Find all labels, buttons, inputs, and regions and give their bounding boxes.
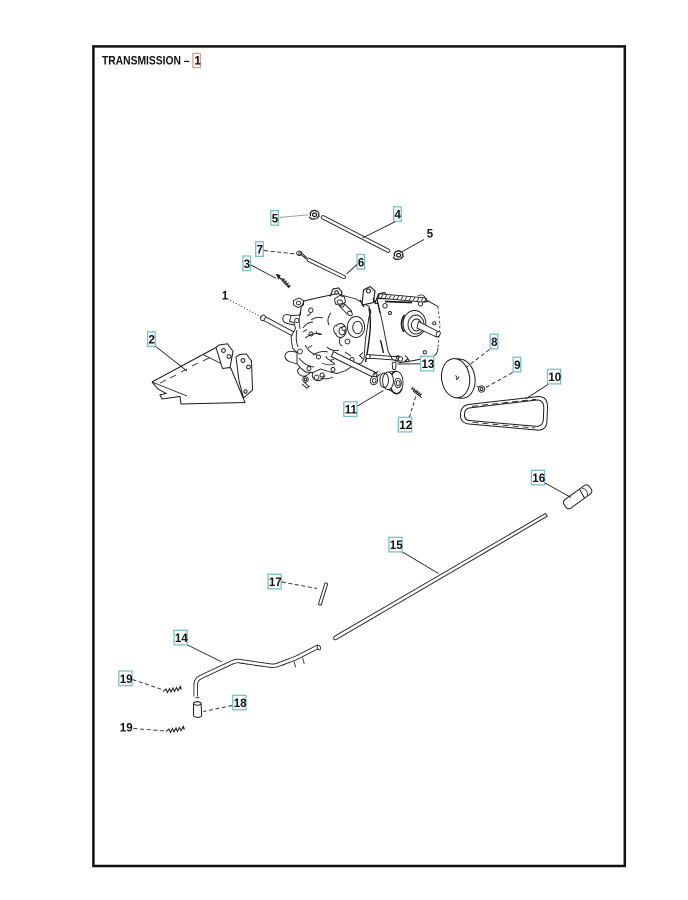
svg-text:4: 4 bbox=[395, 210, 402, 222]
svg-text:16: 16 bbox=[532, 473, 545, 485]
svg-text:19: 19 bbox=[120, 723, 133, 735]
svg-text:1: 1 bbox=[222, 291, 229, 303]
svg-text:5: 5 bbox=[272, 213, 279, 225]
svg-text:11: 11 bbox=[345, 405, 358, 417]
svg-text:10: 10 bbox=[548, 372, 561, 384]
svg-text:9: 9 bbox=[514, 360, 520, 372]
svg-text:3: 3 bbox=[244, 259, 250, 271]
svg-text:15: 15 bbox=[390, 540, 403, 552]
svg-text:19: 19 bbox=[120, 674, 133, 686]
svg-text:5: 5 bbox=[427, 229, 434, 241]
svg-text:13: 13 bbox=[422, 359, 435, 371]
svg-text:1: 1 bbox=[194, 54, 201, 68]
svg-text:2: 2 bbox=[149, 335, 155, 347]
svg-text:14: 14 bbox=[175, 633, 188, 645]
svg-text:17: 17 bbox=[269, 577, 282, 589]
svg-text:TRANSMISSION –: TRANSMISSION – bbox=[102, 54, 190, 68]
svg-text:6: 6 bbox=[358, 257, 364, 269]
svg-text:7: 7 bbox=[257, 245, 263, 257]
svg-text:18: 18 bbox=[234, 698, 247, 710]
svg-text:8: 8 bbox=[491, 337, 498, 349]
svg-text:12: 12 bbox=[399, 420, 412, 432]
